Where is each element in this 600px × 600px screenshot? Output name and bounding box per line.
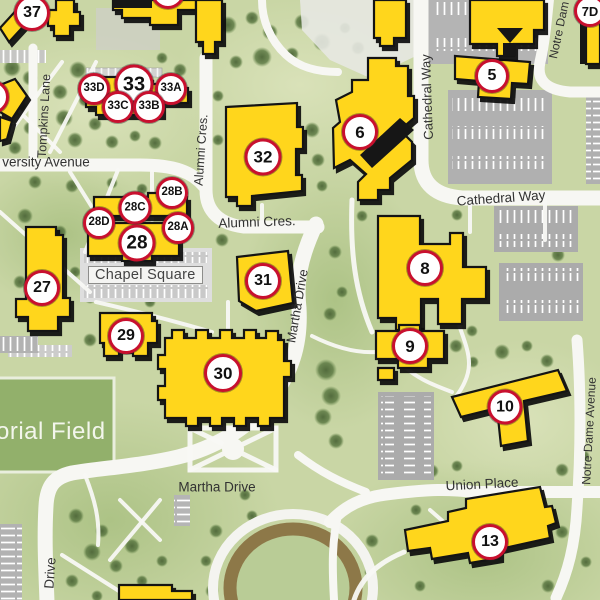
- building-badge-28d[interactable]: 28D: [83, 207, 115, 239]
- building-badge-28c[interactable]: 28C: [119, 192, 152, 225]
- street-label-martha-drive-horizontal: Martha Drive: [178, 480, 255, 495]
- building-badge-9[interactable]: 9: [392, 328, 428, 364]
- street-label-drive: Drive: [41, 557, 58, 589]
- campus-map: 37 33D 33 33A 33C 33B 32 6 5 7D 28B 28C …: [0, 0, 600, 600]
- building-badge-31[interactable]: 31: [245, 263, 281, 299]
- street-label-alumni-cres-horizontal: Alumni Cres.: [218, 213, 296, 231]
- street-label-university-avenue: versity Avenue: [2, 155, 90, 170]
- building-north-of-6[interactable]: [374, 0, 406, 46]
- building-badge-32[interactable]: 32: [245, 139, 282, 176]
- building-badge-29[interactable]: 29: [108, 318, 144, 354]
- building-badge-10[interactable]: 10: [488, 390, 523, 425]
- memorial-field-label: orial Field: [0, 418, 106, 446]
- chapel-square-label: Chapel Square: [88, 266, 203, 284]
- building-badge-28b[interactable]: 28B: [156, 177, 188, 209]
- building-badge-27[interactable]: 27: [24, 270, 60, 306]
- building-badge-28a[interactable]: 28A: [162, 212, 194, 244]
- building-badge-30[interactable]: 30: [204, 354, 242, 392]
- building-badge-13[interactable]: 13: [472, 524, 508, 560]
- building-badge-28[interactable]: 28: [119, 225, 156, 262]
- building-9-annex[interactable]: [378, 368, 394, 380]
- building-badge-8[interactable]: 8: [407, 250, 443, 286]
- building-badge-33c[interactable]: 33C: [102, 91, 134, 123]
- street-label-cathedral-way-vertical: Cathedral Way: [418, 54, 436, 140]
- building-badge-5[interactable]: 5: [475, 59, 509, 93]
- building-north-of-37[interactable]: [48, 0, 80, 36]
- building-badge-33b[interactable]: 33B: [133, 91, 165, 123]
- building-badge-6[interactable]: 6: [342, 114, 378, 150]
